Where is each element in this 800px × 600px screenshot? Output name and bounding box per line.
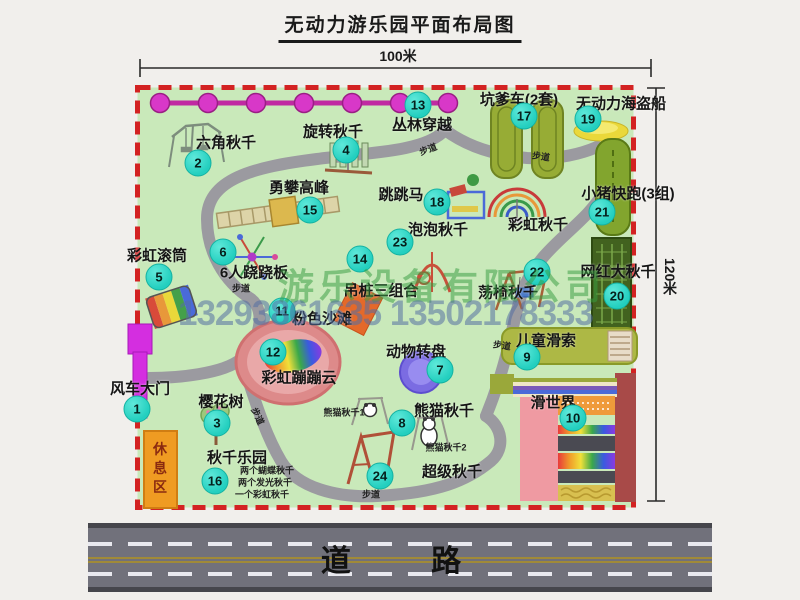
badge-12: 12: [260, 339, 287, 366]
height-dimension-label: 120米: [660, 258, 680, 295]
width-dimension-label: 100米: [379, 46, 416, 66]
badge-21: 21: [589, 199, 616, 226]
label-climbing-peak: 勇攀高峰: [269, 177, 329, 198]
badge-2: 2: [185, 150, 212, 177]
road-label: 道 路: [303, 536, 497, 580]
badge-4: 4: [333, 137, 360, 164]
walkway-label-3: 步道: [232, 282, 250, 295]
plan-canvas: 无动力游乐园平面布局图 100米 120米: [0, 0, 800, 600]
walkway-label-5: 步道: [492, 337, 512, 352]
badge-17: 17: [511, 103, 538, 130]
badge-8: 8: [389, 410, 416, 437]
label-cherry-tree: 樱花树: [198, 391, 243, 412]
label-rainbow-cloud: 彩虹蹦蹦云: [261, 367, 336, 388]
badge-13: 13: [405, 92, 432, 119]
badge-6: 6: [210, 239, 237, 266]
badge-1: 1: [124, 396, 151, 423]
label-hexagon-swing: 六角秋千: [196, 132, 256, 153]
label-swing-park-sub3: 一个彩虹秋千: [235, 488, 289, 501]
badge-18: 18: [424, 189, 451, 216]
label-bubble-swing: 泡泡秋千: [408, 219, 468, 240]
label-rainbow-swing: 彩虹秋千: [508, 214, 568, 235]
label-jumping-horse: 跳跳马: [378, 184, 423, 205]
phone-watermark: 13293861635 13502178333: [178, 294, 593, 334]
label-panda-swing-1: 熊猫秋千1: [323, 406, 364, 419]
badge-23: 23: [387, 229, 414, 256]
badge-10: 10: [560, 405, 587, 432]
badge-7: 7: [427, 357, 454, 384]
badge-20: 20: [604, 283, 631, 310]
label-panda-swing: 熊猫秋千: [414, 400, 474, 421]
badge-3: 3: [204, 410, 231, 437]
rest-area-label: 休息区: [150, 442, 170, 499]
badge-19: 19: [575, 106, 602, 133]
badge-15: 15: [297, 197, 324, 224]
page-title: 无动力游乐园平面布局图: [278, 10, 521, 43]
road: 道 路: [88, 523, 712, 592]
badge-16: 16: [202, 468, 229, 495]
badge-9: 9: [514, 344, 541, 371]
label-rainbow-roller: 彩虹滚筒: [127, 245, 187, 266]
label-super-swing: 超级秋千: [422, 461, 482, 482]
badge-24: 24: [367, 463, 394, 490]
walkway-label-2: 步道: [531, 148, 551, 163]
badge-5: 5: [146, 264, 173, 291]
walkway-label-6: 步道: [362, 488, 380, 501]
label-panda-swing-2: 熊猫秋千2: [425, 441, 466, 454]
